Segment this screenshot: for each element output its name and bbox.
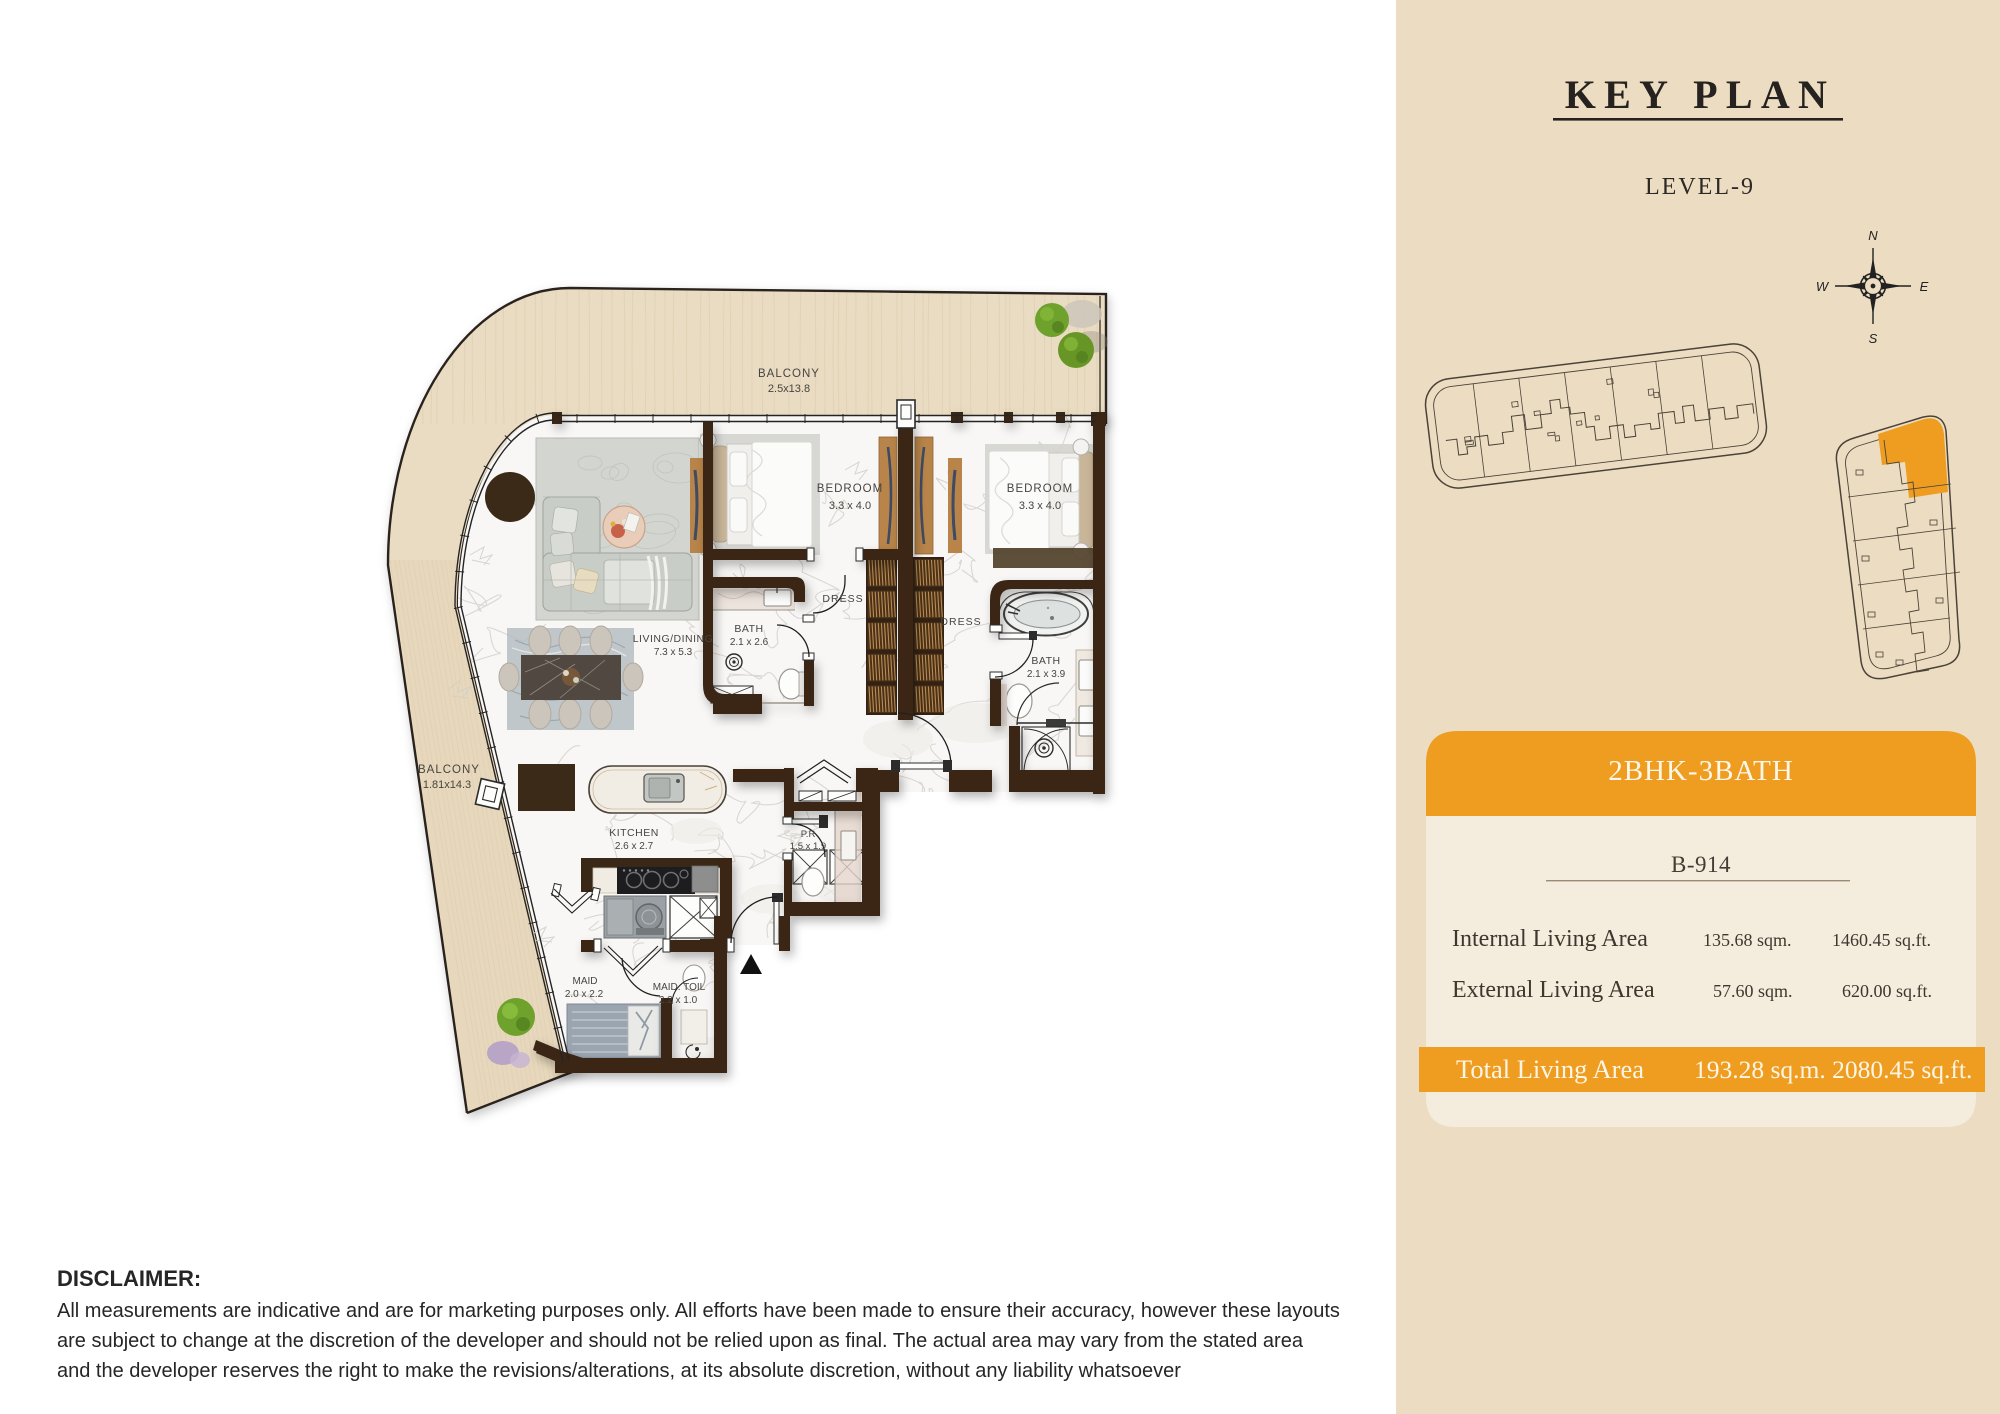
svg-text:LIVING/DINING: LIVING/DINING bbox=[633, 633, 714, 645]
svg-text:LEVEL-9: LEVEL-9 bbox=[1645, 174, 1755, 200]
svg-text:135.68 sqm.: 135.68 sqm. bbox=[1703, 930, 1792, 950]
svg-text:2.1 x 3.9: 2.1 x 3.9 bbox=[1027, 669, 1066, 680]
svg-text:7.3 x 5.3: 7.3 x 5.3 bbox=[654, 647, 693, 658]
svg-text:2.5x13.8: 2.5x13.8 bbox=[768, 383, 810, 395]
svg-text:DRESS: DRESS bbox=[822, 593, 863, 605]
svg-text:BEDROOM: BEDROOM bbox=[1007, 483, 1073, 495]
svg-text:KITCHEN: KITCHEN bbox=[609, 827, 659, 839]
svg-text:1.81x14.3: 1.81x14.3 bbox=[423, 779, 471, 791]
svg-text:DRESS: DRESS bbox=[940, 616, 981, 628]
svg-text:MAID. TOIL: MAID. TOIL bbox=[653, 982, 706, 993]
svg-text:All measurements are indicativ: All measurements are indicative and are … bbox=[57, 1300, 1340, 1322]
svg-text:57.60 sqm.: 57.60 sqm. bbox=[1713, 981, 1793, 1001]
svg-text:Internal Living Area: Internal Living Area bbox=[1452, 926, 1648, 952]
svg-text:are subject to change at the d: are subject to change at the discretion … bbox=[57, 1330, 1304, 1352]
svg-text:B-914: B-914 bbox=[1671, 852, 1731, 877]
svg-text:1460.45 sq.ft.: 1460.45 sq.ft. bbox=[1832, 930, 1931, 950]
svg-text:2.1 x 2.6: 2.1 x 2.6 bbox=[730, 637, 769, 648]
svg-text:N: N bbox=[1868, 228, 1878, 243]
svg-text:KEY PLAN: KEY PLAN bbox=[1565, 72, 1835, 117]
svg-text:DISCLAIMER:: DISCLAIMER: bbox=[57, 1266, 201, 1291]
svg-text:P.R: P.R bbox=[801, 829, 816, 840]
svg-text:W: W bbox=[1816, 279, 1830, 294]
svg-text:BATH: BATH bbox=[1031, 655, 1060, 667]
svg-text:1.5 x 1.9: 1.5 x 1.9 bbox=[790, 841, 826, 852]
svg-text:193.28 sq.m. 2080.45 sq.ft.: 193.28 sq.m. 2080.45 sq.ft. bbox=[1694, 1055, 1972, 1084]
svg-text:Total Living Area: Total Living Area bbox=[1456, 1054, 1644, 1084]
svg-text:S: S bbox=[1869, 331, 1878, 346]
svg-text:BALCONY: BALCONY bbox=[418, 764, 480, 776]
svg-text:3.3 x 4.0: 3.3 x 4.0 bbox=[1019, 500, 1061, 512]
svg-text:2.6 x 2.7: 2.6 x 2.7 bbox=[615, 841, 654, 852]
svg-text:and the developer reserves the: and the developer reserves the right to … bbox=[57, 1360, 1181, 1382]
svg-text:2.0 x 2.2: 2.0 x 2.2 bbox=[565, 989, 604, 1000]
svg-text:2.2 x 1.0: 2.2 x 1.0 bbox=[659, 995, 698, 1006]
svg-text:MAID: MAID bbox=[573, 976, 598, 987]
svg-text:BALCONY: BALCONY bbox=[758, 368, 820, 380]
svg-text:BATH: BATH bbox=[734, 623, 763, 635]
svg-text:External Living Area: External Living Area bbox=[1452, 977, 1655, 1003]
svg-text:3.3 x 4.0: 3.3 x 4.0 bbox=[829, 500, 871, 512]
svg-text:BEDROOM: BEDROOM bbox=[817, 483, 883, 495]
svg-text:620.00 sq.ft.: 620.00 sq.ft. bbox=[1842, 981, 1932, 1001]
svg-text:2BHK-3BATH: 2BHK-3BATH bbox=[1608, 755, 1794, 787]
svg-text:E: E bbox=[1920, 279, 1929, 294]
